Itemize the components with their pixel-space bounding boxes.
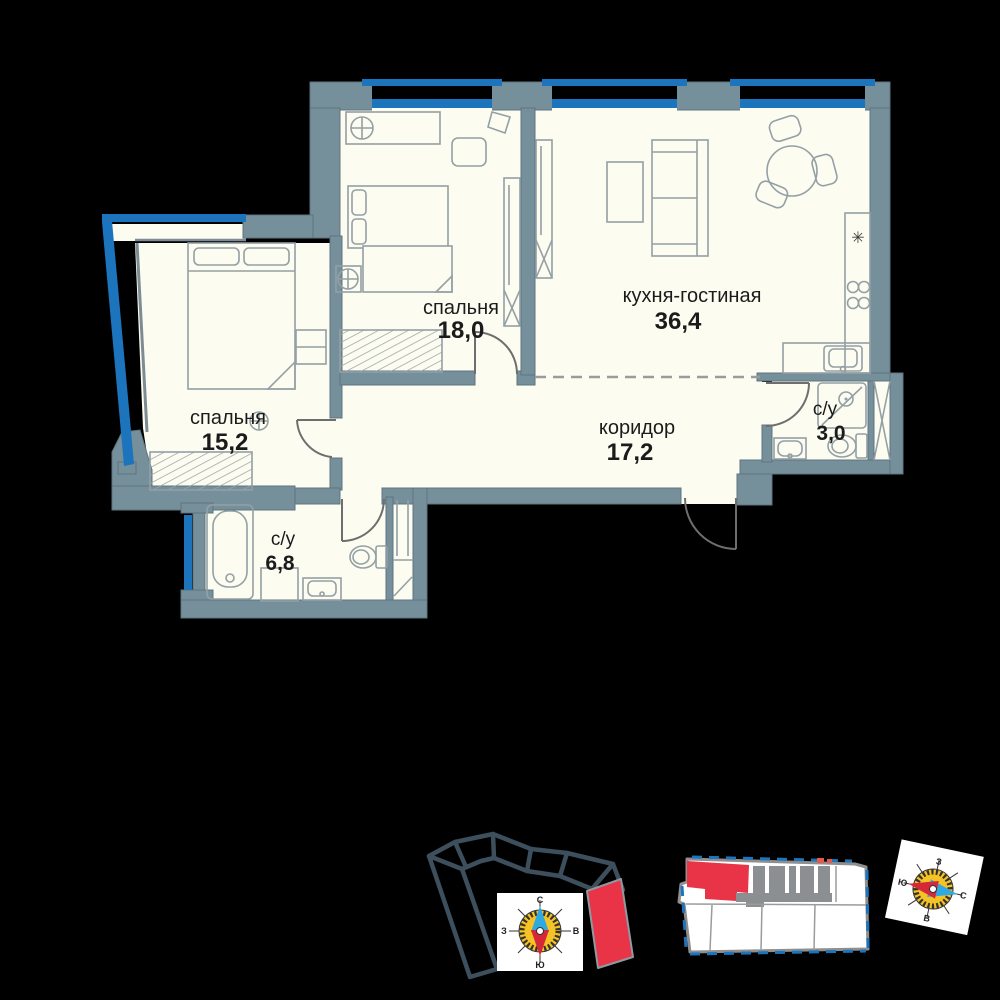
bathroom-big-label: с/у — [271, 529, 296, 550]
compass-rotated-icon: С Ю З В — [885, 839, 984, 935]
bedroom-18-label: спальня — [423, 297, 499, 319]
window-icon — [362, 79, 502, 111]
floor-plan-svg: ✳ — [0, 0, 1000, 1000]
strip-accent-mark — [817, 858, 824, 863]
strip-accent-mark — [827, 859, 832, 863]
bathroom-big-area: 6,8 — [265, 552, 295, 575]
blanket — [363, 246, 452, 292]
ceiling-light-icon — [338, 269, 358, 289]
kitchen-living-area: 36,4 — [655, 308, 702, 335]
compass-north-label: С — [537, 895, 544, 905]
floor-plan-strip — [679, 857, 868, 954]
bedroom-15-label: спальня — [190, 407, 266, 429]
bedroom-18-area: 18,0 — [438, 317, 485, 344]
bedroom-15-area: 15,2 — [202, 429, 249, 456]
kitchen-living-label: кухня-гостиная — [623, 285, 762, 307]
fridge-icon: ✳ — [851, 230, 864, 247]
compass-east-label: В — [573, 926, 580, 936]
compass-south-label: Ю — [535, 960, 544, 970]
bathroom-small-label: с/у — [813, 399, 838, 420]
ceiling-light-icon — [351, 117, 373, 139]
corridor-area: 17,2 — [607, 439, 654, 466]
corridor-label: коридор — [599, 417, 675, 439]
bathroom-small-area: 3,0 — [816, 422, 845, 445]
bed — [348, 186, 448, 248]
window-icon — [542, 79, 687, 111]
wardrobe — [340, 330, 442, 372]
sofa — [652, 140, 708, 256]
window-icon — [730, 79, 875, 111]
compass-west-label: З — [501, 926, 507, 936]
compass-icon: С Ю З В — [497, 893, 583, 971]
wardrobe — [150, 452, 252, 490]
window-icon — [184, 515, 192, 590]
